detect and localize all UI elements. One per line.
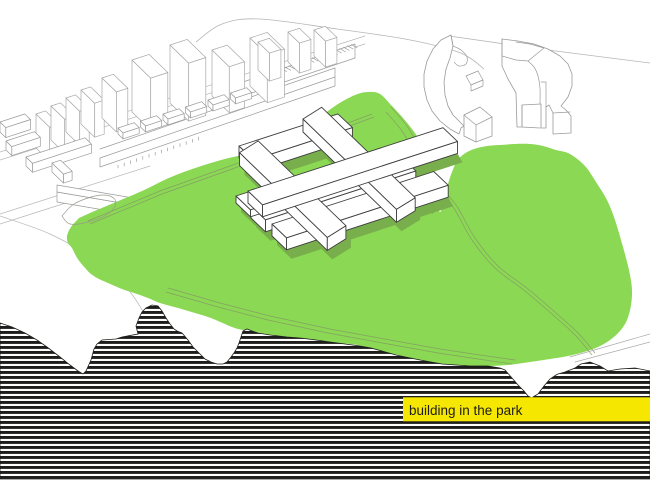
svg-text:building in the park: building in the park — [409, 403, 523, 418]
